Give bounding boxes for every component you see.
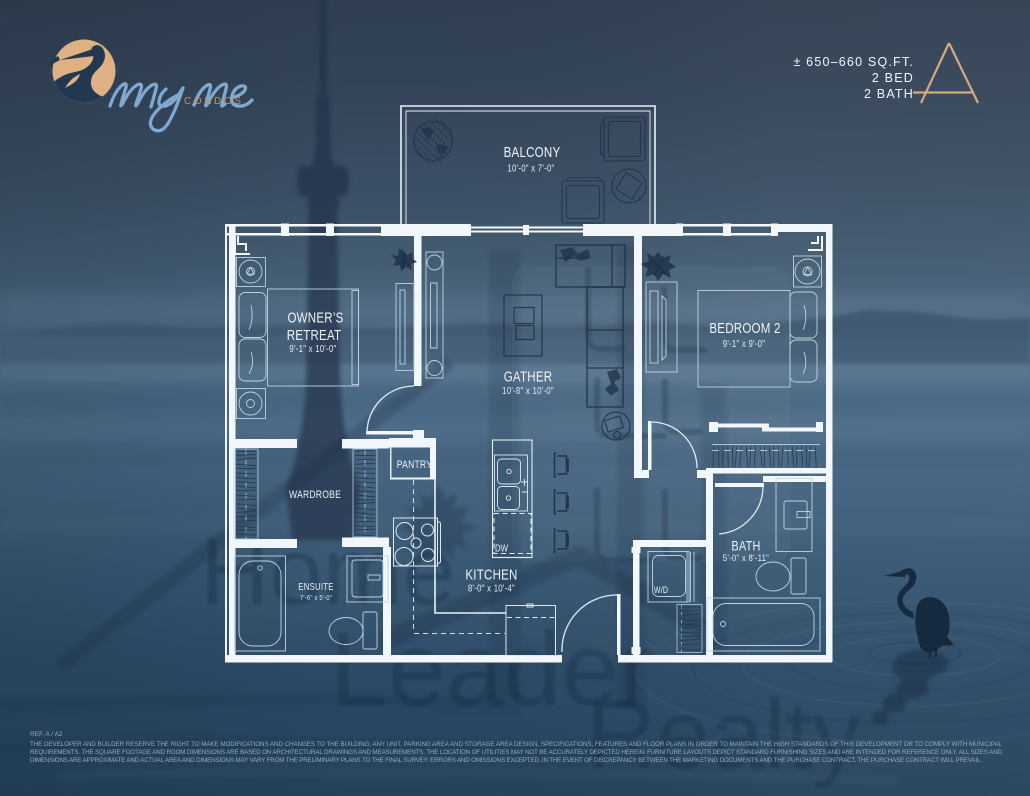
svg-text:2 BED: 2 BED [872, 71, 914, 85]
svg-text:7'-6" x 5'-0": 7'-6" x 5'-0" [300, 595, 332, 603]
svg-text:CONDOS: CONDOS [184, 96, 244, 107]
svg-text:KITCHEN: KITCHEN [465, 566, 517, 583]
svg-text:2 BATH: 2 BATH [864, 87, 914, 101]
svg-text:DW: DW [495, 543, 508, 554]
svg-text:BEDROOM 2: BEDROOM 2 [709, 319, 780, 336]
svg-text:GATHER: GATHER [504, 368, 553, 385]
svg-text:W/D: W/D [654, 585, 668, 595]
svg-text:10'-0" x 7'-0": 10'-0" x 7'-0" [507, 163, 554, 174]
svg-text:± 650–660 SQ.FT.: ± 650–660 SQ.FT. [793, 55, 914, 69]
svg-text:9'-1" x 10'-0": 9'-1" x 10'-0" [289, 343, 336, 354]
svg-text:OWNER’S: OWNER’S [287, 309, 343, 326]
svg-text:REF. A / A2: REF. A / A2 [30, 731, 63, 738]
svg-text:REQUIREMENTS. THE SQUARE FOOTA: REQUIREMENTS. THE SQUARE FOOTAGE AND ROO… [30, 749, 1003, 756]
svg-text:10'-8" x 10'-0": 10'-8" x 10'-0" [502, 385, 554, 396]
svg-text:9'-1" x 9'-0": 9'-1" x 9'-0" [723, 338, 766, 349]
svg-text:PANTRY: PANTRY [397, 459, 433, 471]
svg-text:BALCONY: BALCONY [504, 143, 561, 160]
svg-text:8'-0" x 10'-4": 8'-0" x 10'-4" [468, 583, 515, 594]
svg-text:RETREAT: RETREAT [287, 326, 342, 343]
svg-text:ENSUITE: ENSUITE [298, 581, 333, 592]
svg-text:WARDROBE: WARDROBE [289, 489, 341, 501]
svg-text:5'-0" x 8'-11": 5'-0" x 8'-11" [723, 552, 769, 563]
svg-text:DIMENSIONS ARE APPROXIMATE AND: DIMENSIONS ARE APPROXIMATE AND ACTUAL AR… [30, 757, 982, 764]
svg-text:THE DEVELOPER AND BUILDER RESE: THE DEVELOPER AND BUILDER RESERVE THE RI… [30, 741, 1003, 748]
